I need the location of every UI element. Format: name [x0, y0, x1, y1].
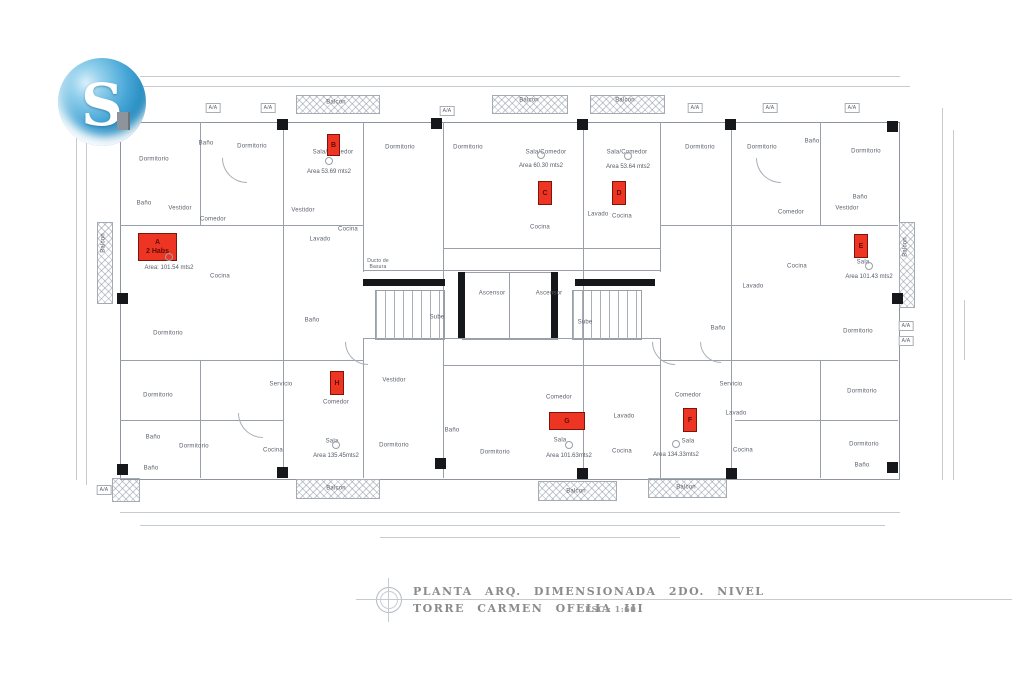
dimension-line [942, 108, 943, 480]
room-label: Dormitorio [685, 145, 715, 152]
room-label: Dormitorio [237, 144, 267, 151]
title-rule [356, 599, 1012, 600]
room-tag-circle [537, 151, 545, 159]
unit-marker-b: B [327, 134, 340, 156]
room-label: Balcon [566, 489, 586, 496]
room-label: Dormitorio [843, 329, 873, 336]
room-tag-circle [624, 152, 632, 160]
room-label: A/A [97, 485, 112, 495]
room-label: Balcon [676, 485, 696, 492]
room-label: Sube [578, 320, 593, 327]
room-label: Lavado [743, 284, 764, 291]
room-tag-circle [865, 262, 873, 270]
unit-letter: F [688, 416, 692, 425]
unit-marker-g: G [549, 412, 585, 430]
room-label: Baño [853, 195, 868, 202]
room-label: Dormitorio [385, 145, 415, 152]
room-label: Servicio [720, 382, 743, 389]
room-label: Vestidor [382, 378, 405, 385]
room-label: Dormitorio [847, 389, 877, 396]
wall [120, 225, 363, 226]
column [117, 293, 128, 304]
room-label: Comedor [778, 210, 804, 217]
room-label: Baño [137, 201, 152, 208]
room-label: Dormitorio [179, 444, 209, 451]
column [887, 462, 898, 473]
room-label: Sube [430, 315, 445, 322]
room-label: Baño [445, 428, 460, 435]
room-label: A/A [688, 103, 703, 113]
room-label: Cocina [210, 274, 230, 281]
compass-icon [376, 587, 402, 613]
wall [443, 365, 660, 366]
title-crosshair [388, 578, 389, 622]
column [726, 468, 737, 479]
column [117, 464, 128, 475]
column [277, 119, 288, 130]
column [577, 119, 588, 130]
wall [820, 122, 821, 225]
unit-letter: C [542, 189, 547, 198]
shear-wall [551, 272, 558, 338]
unit-area-label: Area 101.63mts2 [546, 453, 592, 459]
room-label: Balcon [326, 100, 346, 107]
room-label: Vestidor [168, 206, 191, 213]
column [887, 121, 898, 132]
wall [363, 270, 660, 271]
room-label: Comedor [546, 395, 572, 402]
room-label: Baño [146, 435, 161, 442]
room-label: Dormitorio [851, 149, 881, 156]
room-label: Balcon [519, 98, 539, 105]
unit-letter: G [564, 417, 569, 426]
room-label: Sala [682, 439, 695, 446]
room-label: Dormitorio [139, 157, 169, 164]
unit-letter: E [859, 242, 864, 251]
shear-wall [363, 279, 445, 286]
wall [660, 360, 898, 361]
room-label: Cocina [263, 448, 283, 455]
shear-wall [458, 272, 465, 338]
room-label: Dormitorio [849, 442, 879, 449]
dimension-line [140, 76, 900, 77]
unit-marker-f: F [683, 408, 697, 432]
elevator-core [462, 272, 558, 340]
room-label: Lavado [588, 212, 609, 219]
column [892, 293, 903, 304]
dimension-line [140, 525, 885, 526]
room-label: Ducto de Basura [363, 258, 393, 270]
shear-wall [575, 279, 655, 286]
logo-page-icon [117, 112, 130, 130]
room-label: Baño [805, 139, 820, 146]
room-label: Comedor [675, 393, 701, 400]
room-label: Cocina [733, 448, 753, 455]
room-label: A/A [845, 103, 860, 113]
unit-marker-h: H [330, 371, 344, 395]
dimension-line [76, 130, 77, 480]
dimension-line [86, 120, 87, 485]
company-logo: S [58, 58, 146, 146]
room-label: A/A [763, 103, 778, 113]
column [431, 118, 442, 129]
room-label: Lavado [614, 414, 635, 421]
unit-area-label: Area 53.64 mts2 [606, 164, 650, 170]
unit-letter: H [334, 379, 339, 388]
logo-letter: S [58, 64, 146, 146]
room-label: Dormitorio [453, 145, 483, 152]
unit-area-label: Area 101.43 mts2 [845, 274, 892, 280]
room-label: Balcon [615, 98, 635, 105]
wall [200, 122, 201, 225]
floor-plan-sheet: DormitorioDormitorioBañoSala/ComedorDorm… [0, 0, 1024, 682]
room-label: Baño [305, 318, 320, 325]
drawing-scale: ESC.: 1:60 [585, 604, 636, 614]
room-label: Balcon [101, 233, 108, 253]
room-label: Cocina [787, 264, 807, 271]
room-label: Comedor [323, 400, 349, 407]
unit-area-label: Area 134.33mts2 [653, 452, 699, 458]
room-label: Ascensor [536, 291, 563, 298]
column [435, 458, 446, 469]
room-label: Dormitorio [747, 145, 777, 152]
wall [363, 122, 364, 272]
unit-letter: B [331, 141, 336, 150]
wall [443, 248, 660, 249]
room-label: Dormitorio [480, 450, 510, 457]
room-label: A/A [206, 103, 221, 113]
dimension-line [380, 537, 680, 538]
room-label: Ascensor [479, 291, 506, 298]
unit-marker-e: E [854, 234, 868, 258]
column [725, 119, 736, 130]
wall [735, 420, 898, 421]
room-label: Balcon [903, 237, 910, 257]
room-label: A/A [440, 106, 455, 116]
room-tag-circle [565, 441, 573, 449]
room-label: Servicio [270, 382, 293, 389]
wall [660, 122, 661, 272]
room-label: Lavado [310, 237, 331, 244]
room-label: Cocina [530, 225, 550, 232]
unit-area-label: Area: 101.54 mts2 [144, 265, 193, 271]
unit-area-label: Area 135.45mts2 [313, 453, 359, 459]
room-label: Baño [711, 326, 726, 333]
unit-marker-c: C [538, 181, 552, 205]
room-label: A/A [899, 321, 914, 331]
dimension-line [120, 86, 910, 87]
room-label: Cocina [612, 449, 632, 456]
room-label: Sala/Comedor [526, 150, 567, 157]
room-label: Vestidor [291, 208, 314, 215]
room-label: Baño [855, 463, 870, 470]
room-label: Vestidor [835, 206, 858, 213]
wall [120, 360, 363, 361]
column [577, 468, 588, 479]
dimension-line [964, 300, 965, 360]
room-tag-circle [332, 441, 340, 449]
wall [283, 122, 284, 478]
unit-area-label: Area 53.69 mts2 [307, 169, 351, 175]
wall [731, 122, 732, 478]
dimension-line [953, 130, 954, 480]
room-label: Dormitorio [153, 331, 183, 338]
room-label: A/A [261, 103, 276, 113]
drawing-title: PLANTA ARQ. DIMENSIONADA 2DO. NIVEL [413, 585, 765, 598]
wall [660, 225, 898, 226]
room-label: Dormitorio [379, 443, 409, 450]
column [277, 467, 288, 478]
room-tag-circle [325, 157, 333, 165]
room-label: Balcon [326, 486, 346, 493]
room-tag-circle [165, 253, 173, 261]
room-label: Comedor [200, 217, 226, 224]
room-tag-circle [672, 440, 680, 448]
staircase [572, 290, 642, 340]
wall [820, 360, 821, 478]
room-label: Baño [199, 141, 214, 148]
wall [200, 360, 201, 478]
unit-area-label: Area 60.30 mts2 [519, 163, 563, 169]
room-label: Dormitorio [143, 393, 173, 400]
unit-marker-d: D [612, 181, 626, 205]
dimension-line [120, 512, 900, 513]
unit-letter: D [616, 189, 621, 198]
room-label: Lavado [726, 411, 747, 418]
room-label: Baño [144, 466, 159, 473]
room-label: A/A [899, 336, 914, 346]
unit-letter: A [155, 238, 160, 247]
room-label: Cocina [338, 227, 358, 234]
balcony-hatch [112, 478, 140, 502]
room-label: Cocina [612, 214, 632, 221]
